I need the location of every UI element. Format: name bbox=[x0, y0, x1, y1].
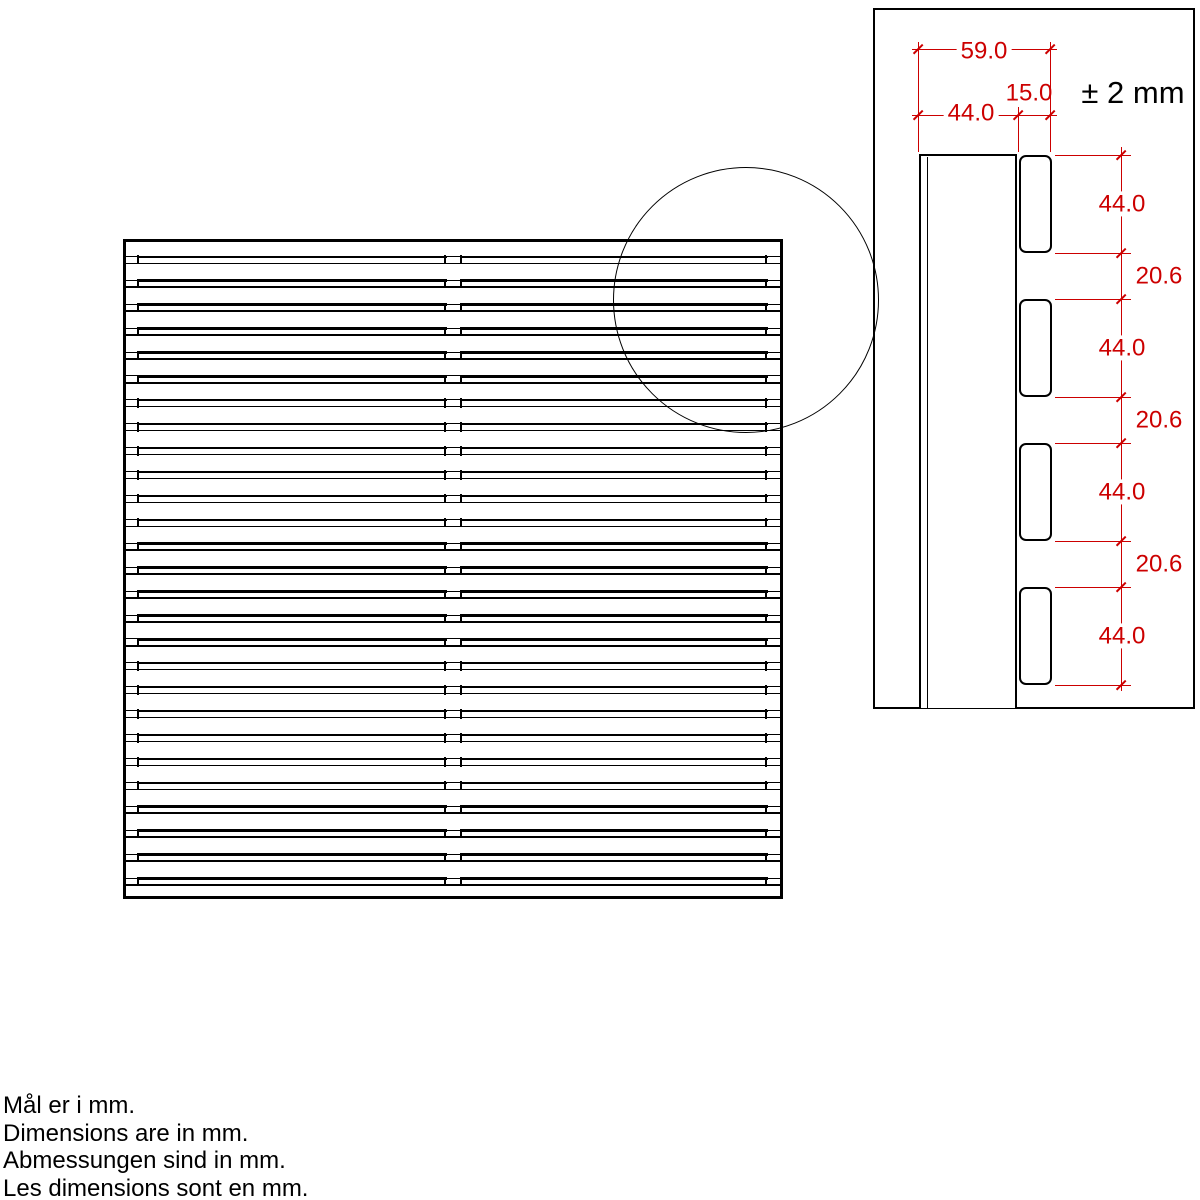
units-notes: Mål er i mm. Dimensions are in mm. Abmes… bbox=[3, 1092, 308, 1200]
band-joint-tick bbox=[460, 757, 462, 766]
band-joint-tick bbox=[137, 398, 139, 407]
band-joint-thin-line bbox=[768, 686, 780, 687]
band-joint-tick bbox=[460, 685, 462, 694]
band-joint-tick bbox=[137, 638, 139, 647]
band-joint-thin-line bbox=[768, 806, 780, 807]
band-joint-tick bbox=[765, 829, 767, 838]
band-joint-tick bbox=[460, 422, 462, 431]
band-lower-line bbox=[126, 502, 780, 504]
band-joint-tick bbox=[137, 590, 139, 599]
band-joint-tick bbox=[460, 614, 462, 623]
band-joint-tick bbox=[137, 685, 139, 694]
band-joint-thin-line bbox=[768, 447, 780, 448]
band-lower-line bbox=[126, 765, 780, 767]
band-joint-tick bbox=[460, 566, 462, 575]
band-joint-thin-line bbox=[447, 328, 461, 329]
band-joint-tick bbox=[137, 757, 139, 766]
band-joint-thin-line bbox=[447, 615, 461, 616]
detail-circle bbox=[613, 167, 879, 433]
side-dim-label: 20.6 bbox=[1136, 407, 1183, 432]
band-joint-tick bbox=[444, 398, 446, 407]
band-joint-tick bbox=[765, 638, 767, 647]
band-joint-thin-line bbox=[447, 830, 461, 831]
band-joint-thin-line bbox=[447, 256, 461, 257]
band-joint-tick bbox=[444, 638, 446, 647]
band-joint-tick bbox=[444, 327, 446, 336]
band-joint-thin-line bbox=[447, 710, 461, 711]
band-joint-tick bbox=[460, 853, 462, 862]
band-joint-thin-line bbox=[447, 686, 461, 687]
band-lower-line bbox=[126, 741, 780, 743]
band-joint-tick bbox=[444, 781, 446, 790]
band-joint-tick bbox=[765, 805, 767, 814]
band-joint-thin-line bbox=[447, 878, 461, 879]
band-joint-tick bbox=[444, 829, 446, 838]
band-joint-tick bbox=[460, 638, 462, 647]
band-joint-tick bbox=[444, 422, 446, 431]
band-joint-tick bbox=[444, 709, 446, 718]
band-joint-tick bbox=[444, 566, 446, 575]
band-joint-tick bbox=[137, 542, 139, 551]
profile-slat bbox=[1019, 299, 1052, 397]
technical-drawing-canvas: 59.0 44.0 15.0 ± 2 mm 44.020.644.020.644… bbox=[0, 0, 1200, 1200]
band-joint-thin-line bbox=[768, 830, 780, 831]
band-joint-tick bbox=[137, 375, 139, 384]
band-joint-tick bbox=[460, 327, 462, 336]
band-joint-tick bbox=[137, 518, 139, 527]
band-joint-tick bbox=[765, 733, 767, 742]
profile-base-chamfer-line bbox=[927, 157, 929, 708]
side-dim-label: 44.0 bbox=[1095, 623, 1150, 648]
profile-slat bbox=[1019, 155, 1052, 253]
band-lower-line bbox=[126, 454, 780, 456]
band-joint-thin-line bbox=[447, 567, 461, 568]
profile-slat bbox=[1019, 443, 1052, 541]
side-dim-label: 44.0 bbox=[1095, 479, 1150, 504]
band-joint-tick bbox=[765, 709, 767, 718]
band-joint-tick bbox=[137, 661, 139, 670]
band-joint-thin-line bbox=[447, 280, 461, 281]
band-lower-line bbox=[126, 836, 780, 838]
band-joint-tick bbox=[137, 614, 139, 623]
band-joint-tick bbox=[765, 494, 767, 503]
band-lower-line bbox=[126, 884, 780, 886]
band-lower-line bbox=[126, 669, 780, 671]
band-joint-tick bbox=[444, 518, 446, 527]
band-lower-line bbox=[126, 478, 780, 480]
band-lower-line bbox=[126, 789, 780, 791]
band-joint-tick bbox=[460, 398, 462, 407]
band-joint-tick bbox=[137, 255, 139, 264]
band-joint-thin-line bbox=[447, 304, 461, 305]
band-joint-tick bbox=[765, 877, 767, 886]
band-joint-tick bbox=[765, 542, 767, 551]
band-joint-tick bbox=[460, 494, 462, 503]
band-joint-thin-line bbox=[447, 638, 461, 639]
band-joint-tick bbox=[137, 781, 139, 790]
band-joint-tick bbox=[444, 470, 446, 479]
band-joint-thin-line bbox=[447, 734, 461, 735]
band-joint-thin-line bbox=[447, 471, 461, 472]
band-joint-tick bbox=[444, 255, 446, 264]
band-joint-thin-line bbox=[768, 662, 780, 663]
band-joint-tick bbox=[765, 614, 767, 623]
band-joint-thin-line bbox=[447, 423, 461, 424]
band-joint-tick bbox=[765, 590, 767, 599]
band-joint-thin-line bbox=[768, 734, 780, 735]
band-joint-thin-line bbox=[768, 782, 780, 783]
band-joint-thin-line bbox=[447, 662, 461, 663]
band-joint-thin-line bbox=[447, 495, 461, 496]
band-joint-thin-line bbox=[768, 638, 780, 639]
band-joint-thin-line bbox=[447, 352, 461, 353]
band-joint-tick bbox=[137, 422, 139, 431]
band-joint-thin-line bbox=[768, 519, 780, 520]
band-lower-line bbox=[126, 526, 780, 528]
profile-base-plank bbox=[919, 154, 1017, 708]
band-joint-thin-line bbox=[768, 710, 780, 711]
band-joint-tick bbox=[765, 470, 767, 479]
note-french: Les dimensions sont en mm. bbox=[3, 1175, 308, 1200]
band-joint-tick bbox=[460, 351, 462, 360]
band-joint-tick bbox=[460, 590, 462, 599]
band-joint-thin-line bbox=[768, 543, 780, 544]
band-joint-tick bbox=[444, 733, 446, 742]
band-joint-tick bbox=[765, 566, 767, 575]
side-dim-label: 20.6 bbox=[1136, 551, 1183, 576]
band-joint-thin-line bbox=[447, 854, 461, 855]
band-joint-tick bbox=[137, 303, 139, 312]
band-joint-tick bbox=[444, 853, 446, 862]
note-english: Dimensions are in mm. bbox=[3, 1120, 308, 1148]
band-joint-tick bbox=[460, 781, 462, 790]
note-danish: Mål er i mm. bbox=[3, 1092, 308, 1120]
band-lower-line bbox=[126, 597, 780, 599]
band-joint-tick bbox=[137, 733, 139, 742]
band-joint-tick bbox=[137, 351, 139, 360]
band-lower-line bbox=[126, 645, 780, 647]
band-lower-line bbox=[126, 621, 780, 623]
band-joint-tick bbox=[444, 542, 446, 551]
band-joint-tick bbox=[460, 805, 462, 814]
note-german: Abmessungen sind in mm. bbox=[3, 1147, 308, 1175]
band-joint-tick bbox=[444, 614, 446, 623]
tolerance-label: ± 2 mm bbox=[1081, 75, 1184, 111]
band-joint-tick bbox=[137, 494, 139, 503]
band-joint-tick bbox=[460, 661, 462, 670]
band-joint-thin-line bbox=[447, 519, 461, 520]
band-lower-line bbox=[126, 549, 780, 551]
band-lower-line bbox=[126, 430, 780, 432]
band-joint-thin-line bbox=[768, 854, 780, 855]
band-joint-tick bbox=[137, 327, 139, 336]
band-joint-tick bbox=[444, 351, 446, 360]
band-joint-tick bbox=[444, 661, 446, 670]
side-dim-label: 44.0 bbox=[1095, 335, 1150, 360]
band-joint-thin-line bbox=[447, 543, 461, 544]
band-joint-tick bbox=[765, 518, 767, 527]
band-joint-tick bbox=[444, 757, 446, 766]
band-joint-tick bbox=[765, 781, 767, 790]
extension-line-left bbox=[918, 42, 919, 152]
band-joint-tick bbox=[765, 757, 767, 766]
band-joint-tick bbox=[460, 829, 462, 838]
band-joint-thin-line bbox=[447, 375, 461, 376]
band-joint-thin-line bbox=[768, 567, 780, 568]
band-joint-thin-line bbox=[768, 758, 780, 759]
band-joint-tick bbox=[460, 279, 462, 288]
band-joint-tick bbox=[137, 566, 139, 575]
band-joint-tick bbox=[460, 518, 462, 527]
band-joint-tick bbox=[444, 494, 446, 503]
band-joint-tick bbox=[137, 829, 139, 838]
band-joint-tick bbox=[444, 805, 446, 814]
band-joint-thin-line bbox=[447, 758, 461, 759]
band-joint-tick bbox=[444, 303, 446, 312]
band-joint-tick bbox=[137, 470, 139, 479]
band-joint-tick bbox=[765, 853, 767, 862]
band-joint-thin-line bbox=[447, 399, 461, 400]
band-joint-tick bbox=[765, 661, 767, 670]
band-joint-tick bbox=[460, 733, 462, 742]
band-joint-tick bbox=[137, 877, 139, 886]
band-joint-tick bbox=[444, 446, 446, 455]
band-joint-thin-line bbox=[768, 495, 780, 496]
band-joint-tick bbox=[460, 877, 462, 886]
band-joint-thin-line bbox=[768, 615, 780, 616]
side-dim-label: 20.6 bbox=[1136, 263, 1183, 288]
band-joint-thin-line bbox=[447, 782, 461, 783]
dim-label-total-width: 59.0 bbox=[957, 38, 1012, 63]
band-joint-tick bbox=[444, 590, 446, 599]
band-joint-thin-line bbox=[768, 878, 780, 879]
band-joint-tick bbox=[765, 446, 767, 455]
band-joint-tick bbox=[460, 303, 462, 312]
band-joint-tick bbox=[444, 375, 446, 384]
band-joint-thin-line bbox=[768, 471, 780, 472]
band-joint-tick bbox=[137, 805, 139, 814]
band-joint-tick bbox=[137, 709, 139, 718]
band-joint-tick bbox=[460, 470, 462, 479]
side-dim-label: 44.0 bbox=[1095, 191, 1150, 216]
band-lower-line bbox=[126, 573, 780, 575]
band-lower-line bbox=[126, 693, 780, 695]
band-joint-tick bbox=[137, 279, 139, 288]
dim-label-slat-width: 15.0 bbox=[1006, 80, 1053, 105]
band-joint-tick bbox=[444, 279, 446, 288]
band-joint-tick bbox=[460, 255, 462, 264]
band-joint-tick bbox=[444, 685, 446, 694]
band-lower-line bbox=[126, 717, 780, 719]
band-joint-tick bbox=[444, 877, 446, 886]
band-lower-line bbox=[126, 812, 780, 814]
band-joint-tick bbox=[765, 685, 767, 694]
dim-line-vertical bbox=[1121, 147, 1122, 691]
band-joint-thin-line bbox=[447, 591, 461, 592]
band-joint-thin-line bbox=[768, 591, 780, 592]
dim-label-base-width: 44.0 bbox=[944, 100, 999, 125]
band-lower-line bbox=[126, 860, 780, 862]
band-joint-thin-line bbox=[447, 447, 461, 448]
band-joint-tick bbox=[137, 446, 139, 455]
band-joint-tick bbox=[460, 446, 462, 455]
band-joint-thin-line bbox=[447, 806, 461, 807]
band-joint-tick bbox=[460, 375, 462, 384]
band-joint-tick bbox=[460, 709, 462, 718]
band-joint-tick bbox=[137, 853, 139, 862]
band-joint-tick bbox=[460, 542, 462, 551]
profile-slat bbox=[1019, 587, 1052, 685]
